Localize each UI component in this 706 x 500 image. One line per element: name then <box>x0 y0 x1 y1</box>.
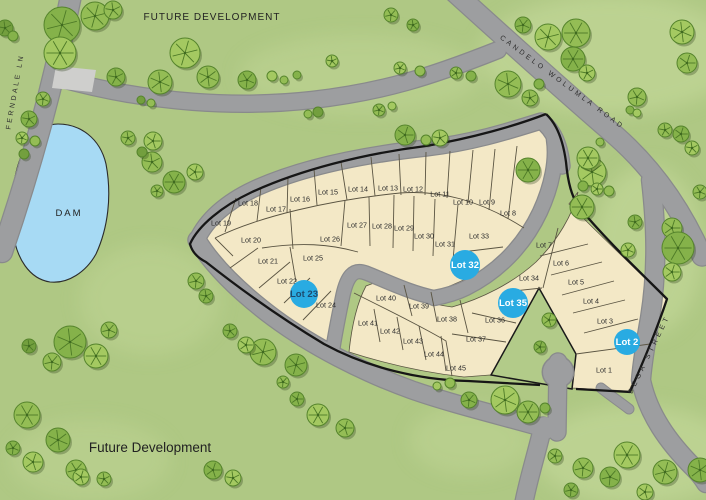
sold-lot-badge[interactable]: Lot 32 <box>450 250 480 280</box>
lot-label: Lot 9 <box>479 198 495 207</box>
sold-lot-badge-label: Lot 35 <box>499 298 528 309</box>
cul-de-sac-bulb <box>543 357 573 387</box>
lot-label: Lot 19 <box>211 219 231 228</box>
lot-label: Lot 11 <box>430 190 449 199</box>
site-plan-map: FUTURE DEVELOPMENT Future Development DA… <box>0 0 706 500</box>
lot-label: Lot 41 <box>358 319 378 328</box>
future-development-bottom-label: Future Development <box>89 440 212 455</box>
dam-label: DAM <box>55 208 82 219</box>
lot-label: Lot 36 <box>485 316 505 325</box>
lot-label: Lot 5 <box>568 278 584 287</box>
sold-lot-badge[interactable]: Lot 23 <box>290 280 318 308</box>
lot-label: Lot 25 <box>303 254 323 263</box>
lot-label: Lot 40 <box>376 294 396 303</box>
lot-label: Lot 38 <box>437 315 457 324</box>
lot-label: Lot 14 <box>348 185 368 194</box>
lot-label: Lot 15 <box>318 188 338 197</box>
lot-label: Lot 31 <box>435 240 455 249</box>
lot-label: Lot 17 <box>266 205 286 214</box>
lot-label: Lot 27 <box>347 221 367 230</box>
lot-label: Lot 8 <box>500 209 516 218</box>
lot-label: Lot 4 <box>583 297 599 306</box>
sold-lot-badge[interactable]: Lot 2 <box>614 329 640 355</box>
lot-label: Lot 13 <box>378 184 398 193</box>
lot-label: Lot 43 <box>403 337 423 346</box>
sold-lot-badge-label: Lot 32 <box>451 260 479 271</box>
lot-label: Lot 10 <box>453 198 473 207</box>
sold-lot-badge-label: Lot 2 <box>616 337 639 348</box>
sold-lot-badge-label: Lot 23 <box>290 289 318 300</box>
lot-label: Lot 33 <box>469 232 489 241</box>
lot-label: Lot 26 <box>320 235 340 244</box>
lot-label: Lot 34 <box>519 274 539 283</box>
lot-label: Lot 29 <box>394 224 414 233</box>
lot-label: Lot 7 <box>536 241 552 250</box>
sold-lot-badge[interactable]: Lot 35 <box>498 288 528 318</box>
lot-label: Lot 37 <box>466 335 486 344</box>
site-plan-svg: FUTURE DEVELOPMENT Future Development DA… <box>0 0 706 500</box>
lot-label: Lot 24 <box>316 301 336 310</box>
lot-label: Lot 30 <box>414 232 434 241</box>
lot-label: Lot 42 <box>380 327 400 336</box>
lot-label: Lot 20 <box>241 236 261 245</box>
lot-label: Lot 18 <box>238 199 258 208</box>
lot-label: Lot 3 <box>597 317 613 326</box>
lot-label: Lot 12 <box>403 185 423 194</box>
lot-label: Lot 22 <box>277 277 297 286</box>
future-development-top-label: FUTURE DEVELOPMENT <box>144 12 281 23</box>
lot-label: Lot 28 <box>372 222 392 231</box>
lot-label: Lot 45 <box>446 364 466 373</box>
lot-label: Lot 39 <box>409 302 429 311</box>
lot-label: Lot 44 <box>424 350 444 359</box>
lot-label: Lot 21 <box>258 257 278 266</box>
lot-label: Lot 6 <box>553 259 569 268</box>
lot-label: Lot 1 <box>596 366 612 375</box>
lot-label: Lot 16 <box>290 195 310 204</box>
